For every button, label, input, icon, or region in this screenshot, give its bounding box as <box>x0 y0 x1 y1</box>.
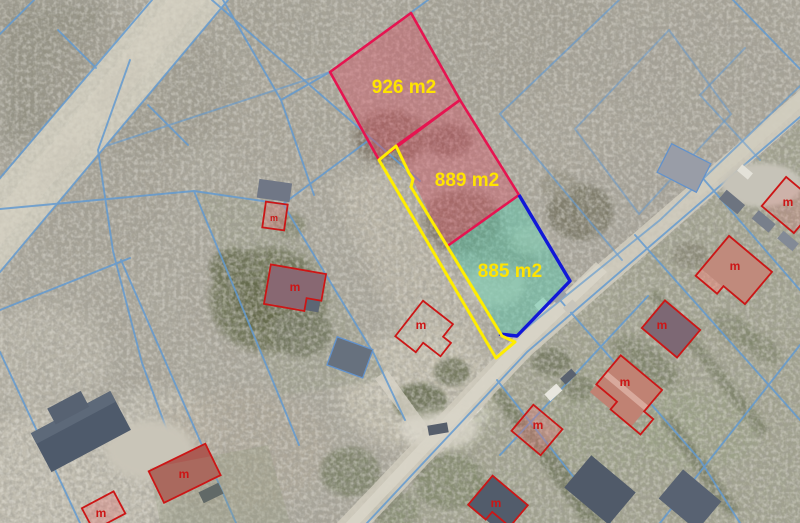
svg-text:889 m2: 889 m2 <box>435 170 499 191</box>
svg-text:m: m <box>657 318 668 332</box>
svg-text:m: m <box>783 195 794 209</box>
svg-text:m: m <box>290 280 301 294</box>
svg-text:926 m2: 926 m2 <box>372 77 436 98</box>
svg-text:m: m <box>179 467 190 481</box>
svg-text:m: m <box>620 375 631 389</box>
svg-text:m: m <box>416 318 427 332</box>
svg-text:m: m <box>96 506 107 520</box>
svg-text:m: m <box>533 418 544 432</box>
svg-text:m: m <box>491 496 502 510</box>
svg-text:885 m2: 885 m2 <box>478 261 542 282</box>
svg-text:m: m <box>270 213 278 223</box>
svg-text:m: m <box>730 259 741 273</box>
